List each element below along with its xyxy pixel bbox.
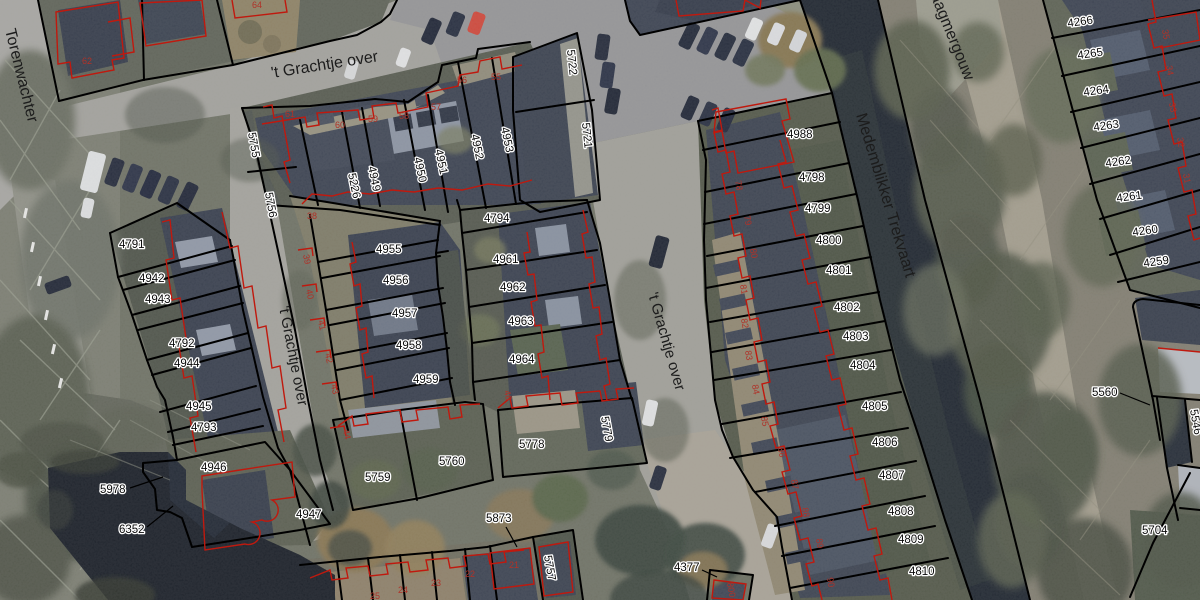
svg-text:5760: 5760: [439, 456, 465, 468]
svg-text:4964: 4964: [509, 354, 535, 366]
svg-text:4805: 4805: [862, 401, 888, 413]
svg-text:78: 78: [733, 180, 745, 192]
svg-text:4946: 4946: [201, 462, 227, 474]
svg-text:86: 86: [776, 447, 788, 459]
svg-text:4962: 4962: [500, 282, 526, 294]
svg-text:42: 42: [323, 352, 335, 364]
svg-text:21: 21: [509, 560, 519, 570]
svg-text:5778: 5778: [519, 439, 545, 451]
svg-text:23: 23: [431, 578, 441, 588]
svg-text:4802: 4802: [834, 302, 860, 314]
svg-text:80: 80: [748, 248, 760, 260]
svg-text:4963: 4963: [508, 316, 534, 328]
svg-text:4959: 4959: [413, 374, 439, 386]
svg-text:60: 60: [335, 120, 345, 130]
svg-text:4958: 4958: [396, 340, 422, 352]
svg-text:35: 35: [1160, 29, 1172, 41]
svg-text:4956: 4956: [383, 275, 409, 287]
svg-text:44: 44: [341, 428, 353, 440]
svg-text:82: 82: [739, 318, 751, 330]
svg-text:4955: 4955: [376, 244, 402, 256]
svg-text:4801: 4801: [826, 265, 852, 277]
svg-text:4957: 4957: [392, 308, 418, 320]
svg-text:33: 33: [1167, 102, 1179, 114]
svg-text:84: 84: [750, 384, 762, 396]
svg-text:39: 39: [301, 253, 313, 265]
svg-text:59: 59: [368, 114, 378, 124]
svg-text:4377: 4377: [674, 562, 700, 574]
svg-text:32: 32: [1175, 137, 1187, 149]
svg-text:4804: 4804: [850, 360, 876, 372]
svg-text:4810: 4810: [909, 566, 935, 578]
svg-text:64: 64: [252, 0, 262, 10]
svg-text:4806: 4806: [872, 437, 898, 449]
svg-text:4794: 4794: [484, 213, 510, 225]
svg-text:56: 56: [457, 75, 467, 85]
svg-text:62: 62: [82, 56, 92, 66]
svg-text:4942: 4942: [139, 273, 165, 285]
svg-text:5873: 5873: [486, 513, 512, 525]
svg-text:4961: 4961: [493, 254, 519, 266]
svg-text:4799: 4799: [805, 203, 831, 215]
svg-text:4803: 4803: [843, 331, 869, 343]
svg-text:85: 85: [759, 416, 771, 428]
svg-text:4798: 4798: [799, 172, 825, 184]
svg-text:5704: 5704: [1142, 525, 1168, 537]
svg-text:58: 58: [399, 111, 409, 121]
svg-text:4808: 4808: [888, 506, 914, 518]
svg-text:24: 24: [398, 585, 408, 595]
svg-text:25: 25: [370, 591, 380, 600]
svg-text:4792: 4792: [169, 338, 195, 350]
svg-text:89: 89: [814, 538, 826, 550]
svg-text:4988: 4988: [787, 129, 813, 141]
svg-text:88: 88: [800, 507, 812, 519]
svg-text:43: 43: [329, 383, 341, 395]
svg-text:4944: 4944: [174, 358, 200, 370]
svg-text:46: 46: [502, 389, 514, 401]
svg-text:4791: 4791: [119, 239, 145, 251]
svg-text:57: 57: [431, 102, 441, 112]
svg-text:4807: 4807: [879, 470, 905, 482]
svg-text:79: 79: [742, 215, 754, 227]
svg-text:5978: 5978: [100, 484, 126, 496]
svg-text:4809: 4809: [898, 534, 924, 546]
svg-text:5560: 5560: [1092, 387, 1118, 399]
svg-text:31: 31: [1181, 173, 1193, 185]
svg-text:5759: 5759: [365, 472, 391, 484]
svg-text:4800: 4800: [816, 235, 842, 247]
svg-text:40: 40: [304, 288, 316, 300]
svg-text:61: 61: [285, 109, 295, 119]
svg-text:90: 90: [825, 577, 837, 589]
svg-text:87: 87: [789, 479, 801, 491]
svg-text:55: 55: [491, 72, 501, 82]
svg-text:41: 41: [316, 319, 328, 331]
svg-text:4945: 4945: [186, 401, 212, 413]
svg-text:4947: 4947: [296, 509, 322, 521]
svg-text:38: 38: [307, 211, 317, 221]
svg-text:81: 81: [738, 284, 750, 296]
svg-text:83: 83: [743, 350, 755, 362]
svg-text:4793: 4793: [191, 422, 217, 434]
svg-text:6352: 6352: [119, 524, 145, 536]
svg-text:4943: 4943: [145, 294, 171, 306]
svg-text:22: 22: [465, 569, 475, 579]
svg-text:34: 34: [1164, 65, 1176, 77]
